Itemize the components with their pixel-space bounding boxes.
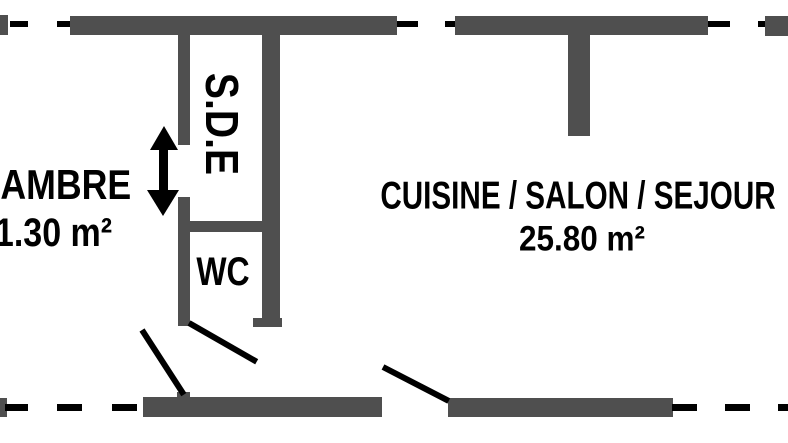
room-label-sde: S.D.E — [199, 73, 245, 175]
door-swing-line-cuisine — [382, 364, 451, 403]
dashed-boundary-segment — [725, 404, 750, 411]
arrow-head-down — [147, 190, 179, 216]
dashed-boundary-segment — [112, 404, 137, 411]
wall-sde-wc-divider — [178, 221, 263, 232]
room-area-cuisine: 25.80 m² — [519, 222, 645, 257]
wall-top-right — [455, 16, 708, 35]
wall-sde-right-foot — [253, 318, 282, 327]
wall-bottom-right — [448, 398, 673, 417]
dashed-boundary-segment — [672, 404, 697, 411]
door-swing-line-chambre — [139, 328, 186, 396]
room-label-chambre: CHAMBRE — [0, 164, 131, 206]
wall-kitchen-stub — [568, 35, 590, 136]
room-label-cuisine: CUISINE / SALON / SEJOUR — [380, 177, 775, 216]
wall-stub-top-left — [0, 15, 8, 35]
dashed-boundary-segment — [5, 404, 28, 411]
door-swing-line-wc — [188, 320, 259, 364]
wall-top-left — [70, 16, 397, 35]
wall-stub-top-right — [765, 16, 788, 36]
dashed-boundary-segment — [708, 21, 730, 27]
wall-sde-right — [262, 35, 280, 327]
wall-sde-left-lower — [178, 197, 190, 326]
room-area-chambre: 11.30 m² — [0, 213, 112, 253]
wall-bottom-left — [143, 397, 382, 417]
dashed-boundary-segment — [778, 404, 788, 411]
floor-plan-canvas: CHAMBRE 11.30 m² S.D.E WC CUISINE / SALO… — [0, 0, 788, 443]
dashed-boundary-segment — [57, 404, 82, 411]
arrow-shaft — [159, 146, 168, 194]
room-label-wc: WC — [196, 252, 249, 292]
dashed-boundary-segment — [10, 21, 28, 27]
wall-sde-left-upper — [178, 35, 190, 145]
